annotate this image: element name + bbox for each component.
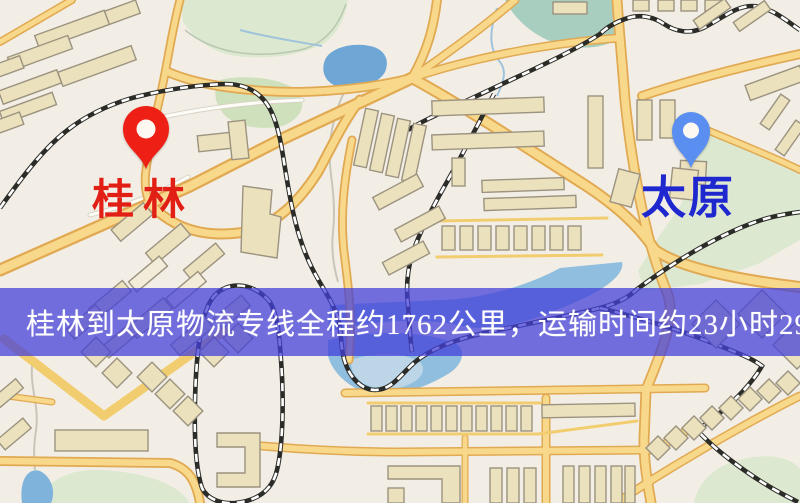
- origin-pin-icon[interactable]: [117, 103, 175, 171]
- map-canvas: [0, 0, 800, 503]
- origin-city-label: 桂林: [92, 180, 194, 222]
- route-info-banner: 桂林到太原物流专线全程约1762公里，运输时间约23小时29分钟.: [0, 288, 800, 356]
- destination-city-label: 太原: [641, 176, 735, 221]
- destination-pin-icon[interactable]: [667, 110, 715, 170]
- route-info-text: 桂林到太原物流专线全程约1762公里，运输时间约23小时29分钟.: [26, 301, 800, 343]
- map-screenshot: 桂林到太原物流专线全程约1762公里，运输时间约23小时29分钟. 桂林 太原: [0, 0, 800, 503]
